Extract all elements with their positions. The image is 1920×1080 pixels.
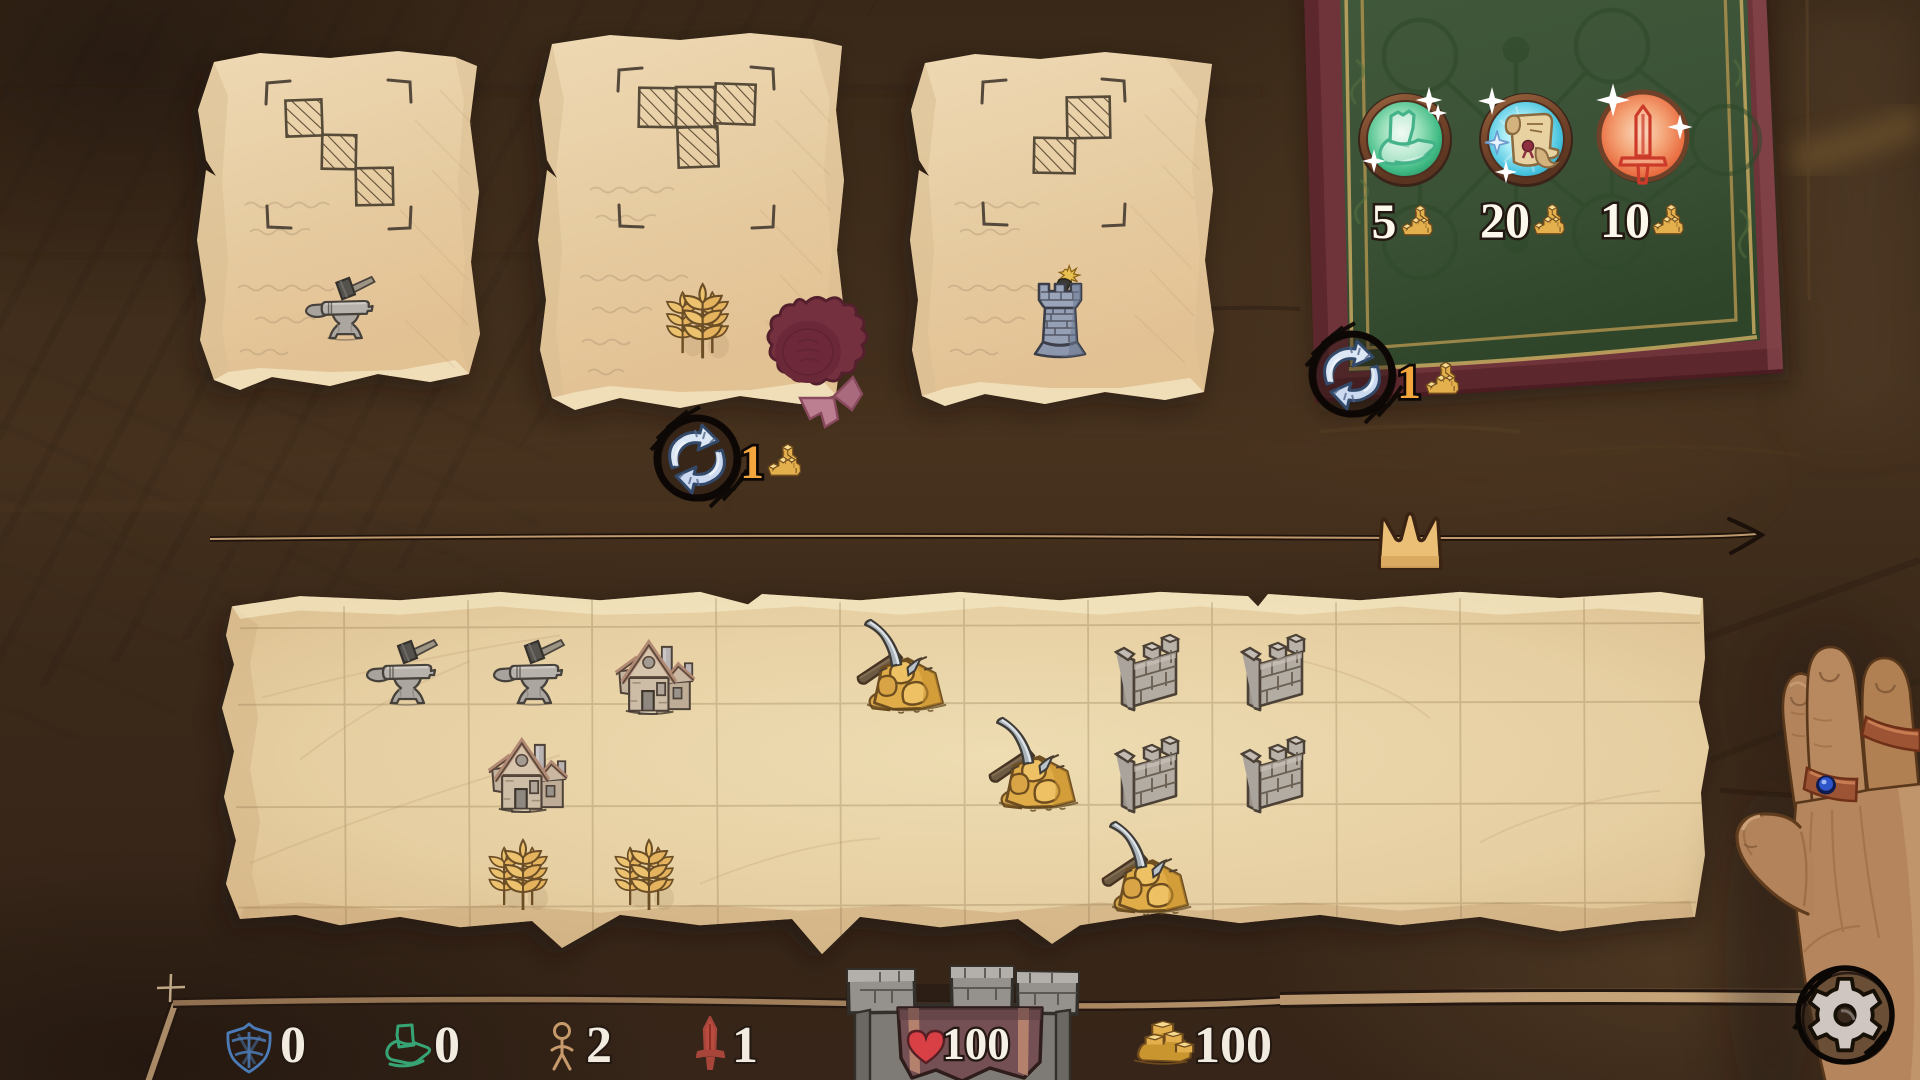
svg-text:20: 20 xyxy=(1480,192,1530,248)
svg-text:0: 0 xyxy=(434,1017,460,1074)
svg-text:100: 100 xyxy=(1194,1017,1272,1074)
svg-text:10: 10 xyxy=(1600,192,1650,248)
svg-text:2: 2 xyxy=(586,1017,612,1074)
svg-text:0: 0 xyxy=(280,1017,306,1074)
svg-text:5: 5 xyxy=(1372,193,1397,249)
svg-text:1: 1 xyxy=(1397,356,1421,409)
svg-text:100: 100 xyxy=(942,1019,1010,1069)
svg-text:1: 1 xyxy=(732,1017,758,1074)
svg-text:1: 1 xyxy=(740,436,764,489)
